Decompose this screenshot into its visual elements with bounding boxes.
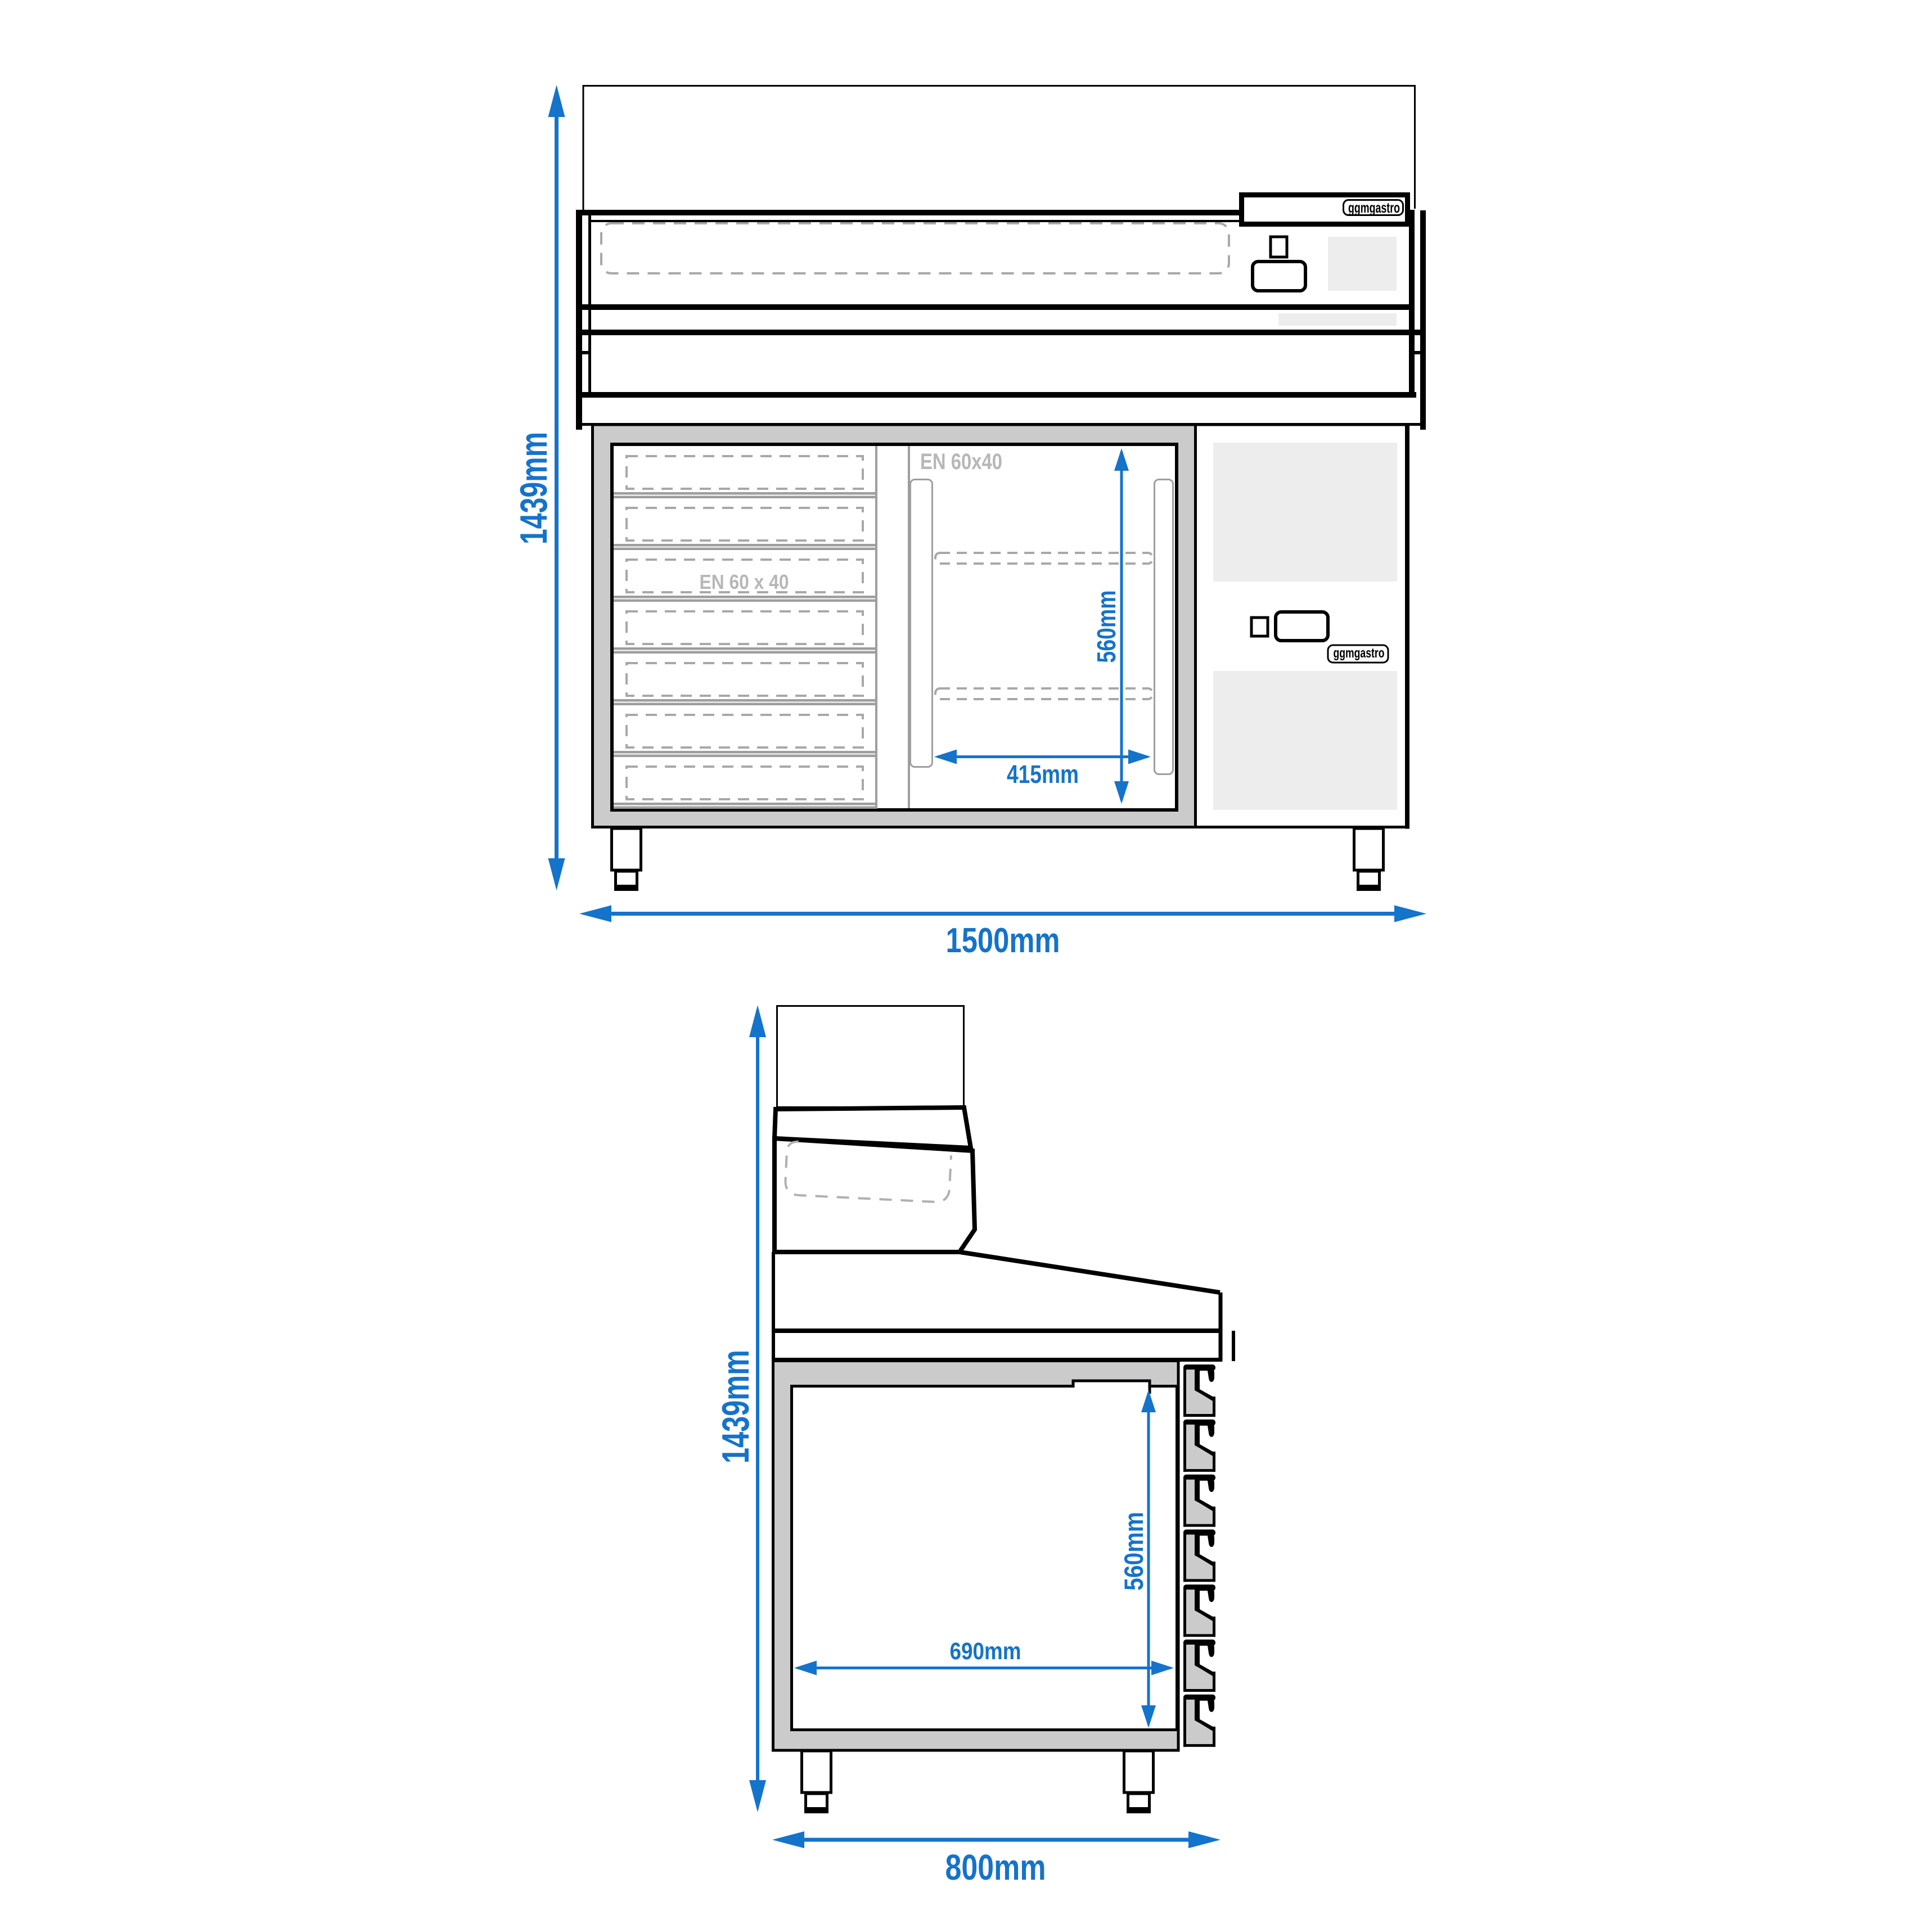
svg-text:ggmgastro: ggmgastro	[1334, 646, 1385, 661]
svg-text:800mm: 800mm	[945, 1847, 1046, 1888]
svg-text:560mm: 560mm	[1119, 1512, 1149, 1591]
svg-text:EN 60 x 40: EN 60 x 40	[700, 570, 789, 593]
svg-text:ggmgastro: ggmgastro	[1348, 199, 1400, 216]
svg-text:415mm: 415mm	[1007, 760, 1079, 789]
svg-text:1500mm: 1500mm	[946, 921, 1060, 960]
svg-text:1439mm: 1439mm	[714, 1350, 757, 1463]
svg-text:560mm: 560mm	[1092, 591, 1121, 663]
svg-text:690mm: 690mm	[950, 1638, 1021, 1665]
svg-text:EN 60x40: EN 60x40	[920, 449, 1002, 474]
svg-text:1439mm: 1439mm	[512, 432, 555, 544]
